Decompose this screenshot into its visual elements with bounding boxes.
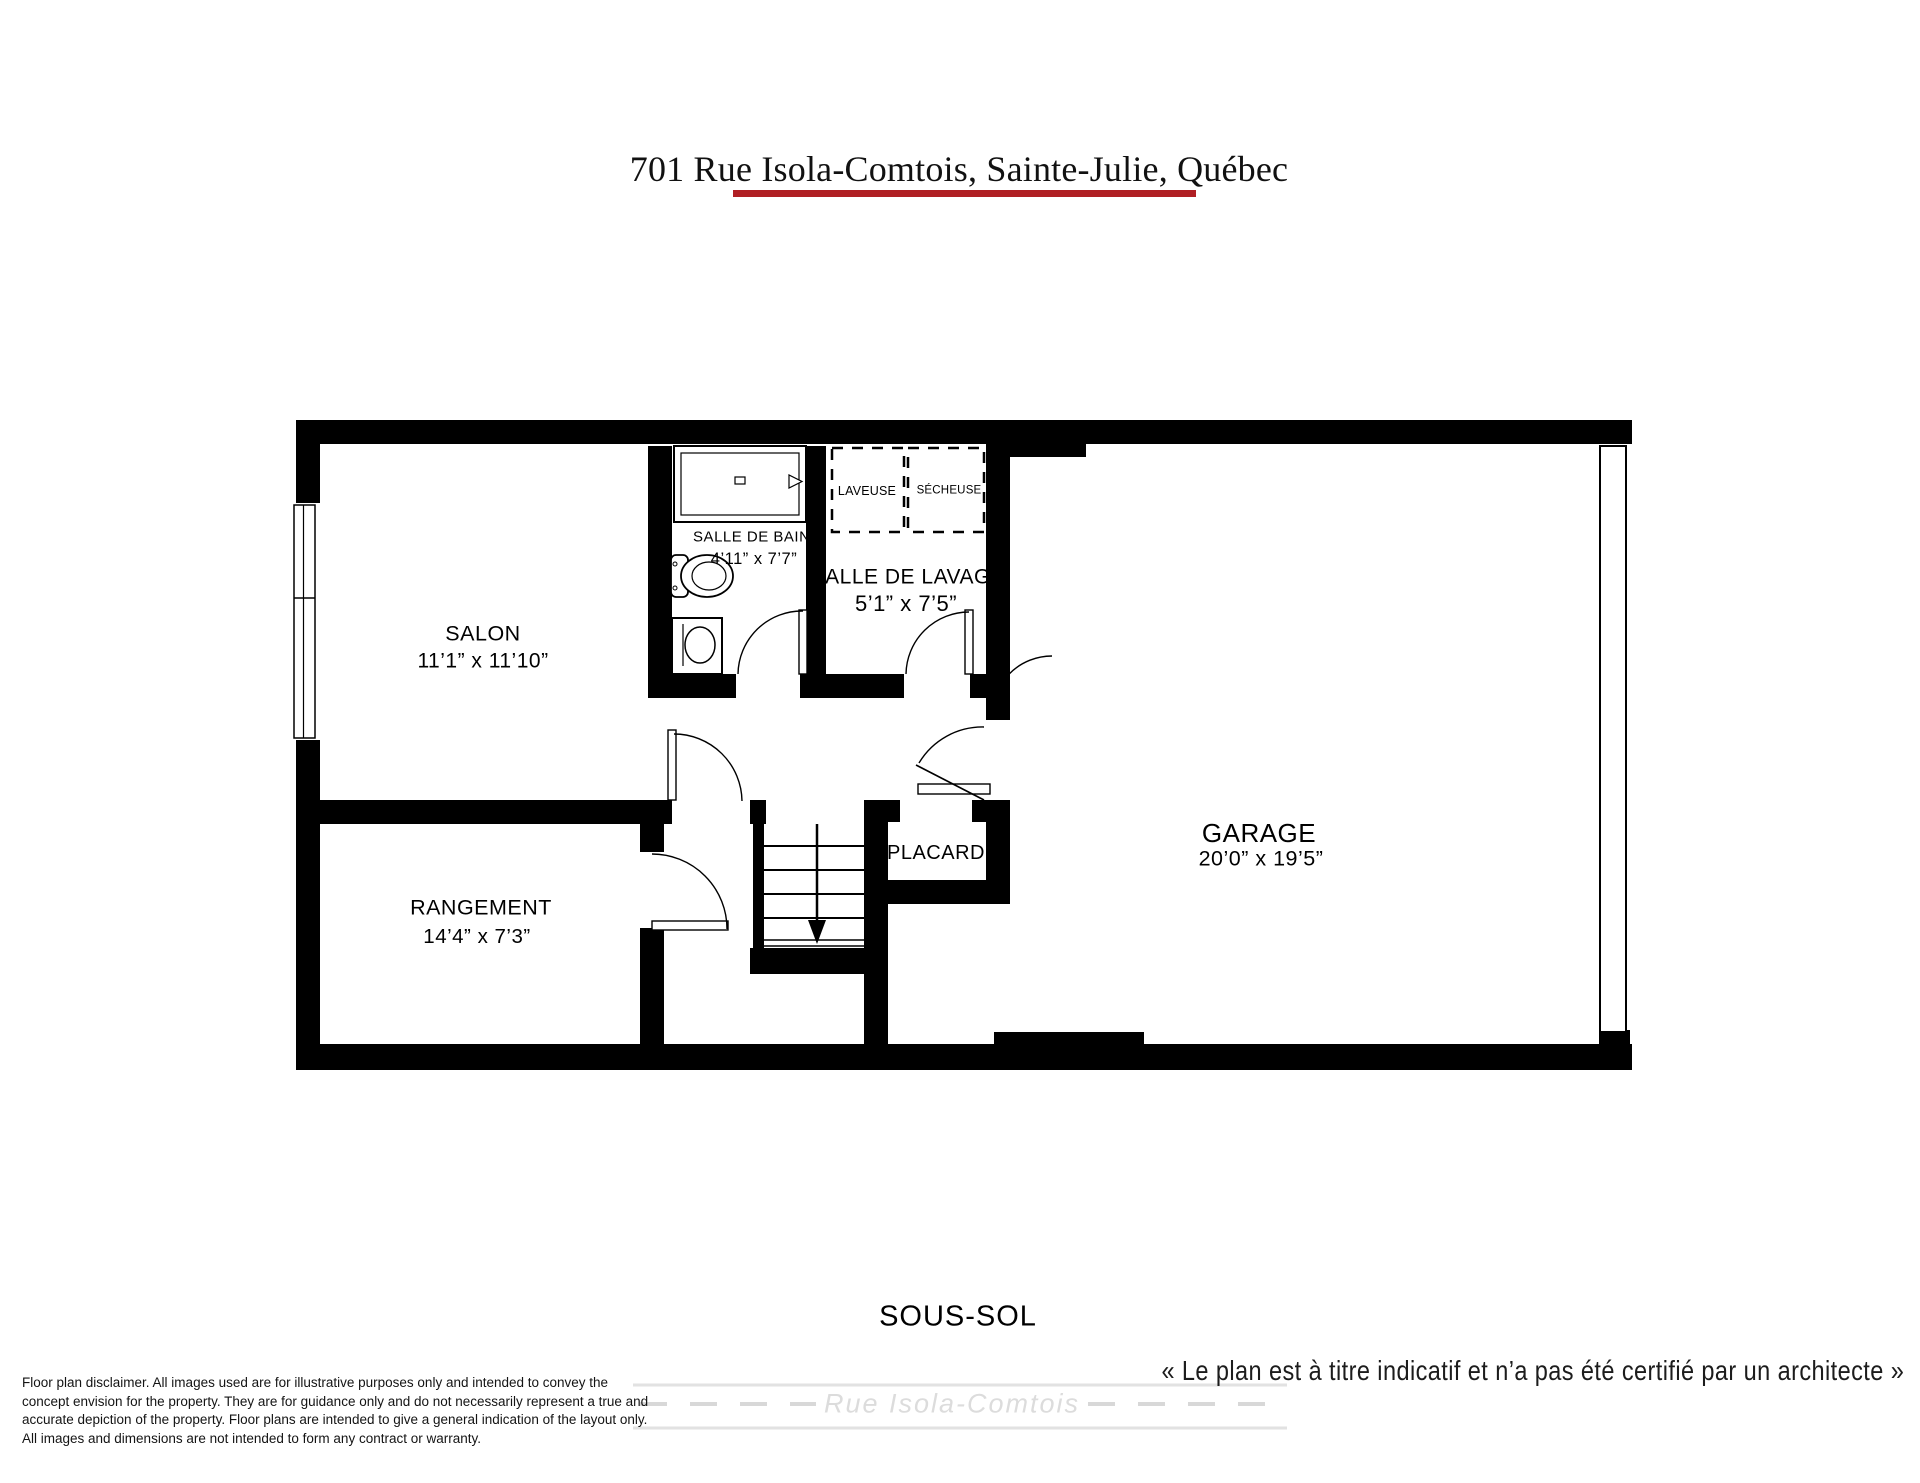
room-dims-salle-de-lavage: 5’1” x 7’5” — [855, 593, 957, 615]
architect-disclaimer-quote: « Le plan est à titre indicatif et n’a p… — [1161, 1355, 1904, 1387]
window-icon — [292, 503, 322, 740]
sink-icon — [672, 618, 722, 674]
room-label-placard: PLACARD — [887, 843, 985, 863]
floor-level-label: SOUS-SOL — [879, 1301, 1037, 1334]
disclaimer-line: accurate depiction of the property. Floo… — [22, 1411, 648, 1430]
room-dims-rangement: 14’4” x 7’3” — [423, 927, 530, 948]
bathtub-icon — [674, 446, 806, 522]
street-name-watermark: Rue Isola-Comtois — [824, 1389, 1080, 1420]
floor-plan-disclaimer: Floor plan disclaimer. All images used a… — [22, 1374, 648, 1448]
room-dims-salon: 11’1” x 11’10” — [417, 651, 548, 672]
room-label-salon: SALON — [445, 623, 520, 645]
room-label-salle-de-lavage: SALLE DE LAVAGE — [811, 567, 1006, 588]
room-label-rangement: RANGEMENT — [410, 897, 552, 919]
interior-walls — [320, 446, 1010, 1046]
stairs-icon — [764, 824, 864, 946]
room-dims-salle-de-bains: 4’11” x 7’7” — [711, 551, 797, 568]
floor-plan-drawing — [0, 0, 1920, 1483]
title-underline — [733, 190, 1196, 197]
room-label-garage: GARAGE — [1202, 820, 1316, 846]
page-title: 701 Rue Isola-Comtois, Sainte-Julie, Qué… — [630, 148, 1288, 190]
disclaimer-line: concept envision for the property. They … — [22, 1393, 648, 1412]
garage-overhead-door — [1600, 446, 1626, 1032]
disclaimer-line: All images and dimensions are not intend… — [22, 1430, 648, 1449]
room-label-salle-de-bains: SALLE DE BAINS — [693, 530, 821, 545]
disclaimer-line: Floor plan disclaimer. All images used a… — [22, 1374, 648, 1393]
room-dims-garage: 20’0” x 19’5” — [1199, 848, 1324, 870]
appliance-label-washer: LAVEUSE — [838, 485, 896, 498]
appliance-label-dryer: SÉCHEUSE — [917, 485, 982, 497]
exterior-walls — [296, 420, 1632, 1070]
